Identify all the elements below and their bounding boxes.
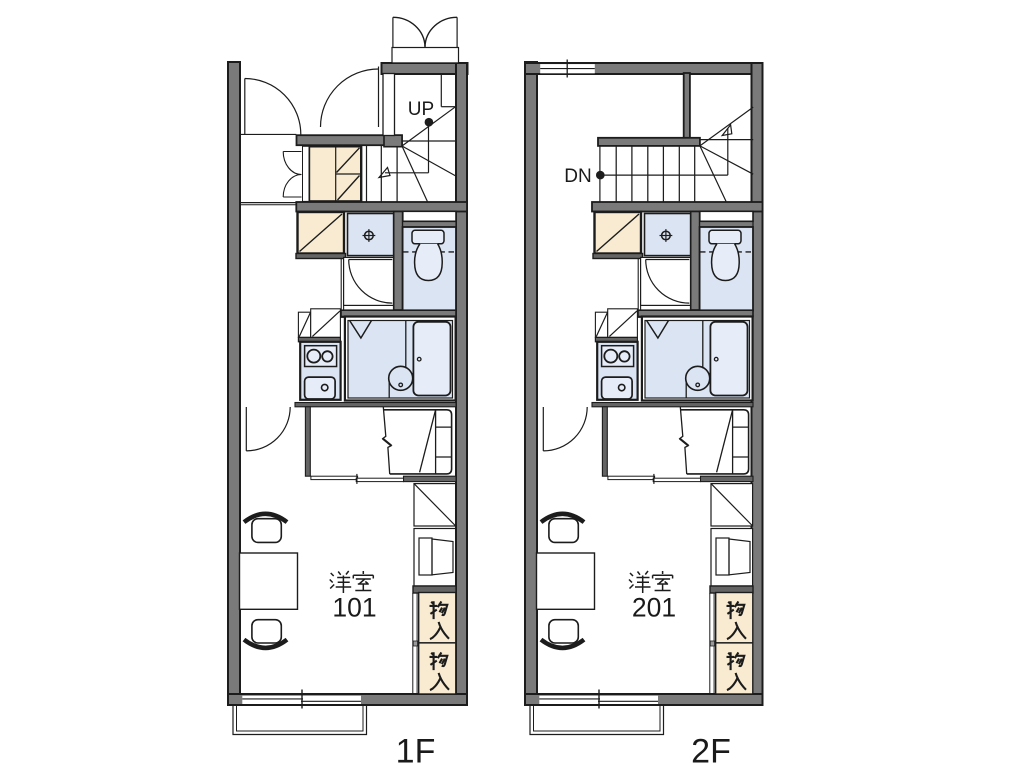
svg-text:1F: 1F <box>396 733 436 771</box>
svg-text:UP: UP <box>408 99 434 120</box>
svg-text:2F: 2F <box>691 733 731 771</box>
svg-text:201: 201 <box>632 593 676 623</box>
svg-text:101: 101 <box>332 593 376 623</box>
svg-text:DN: DN <box>564 166 591 187</box>
